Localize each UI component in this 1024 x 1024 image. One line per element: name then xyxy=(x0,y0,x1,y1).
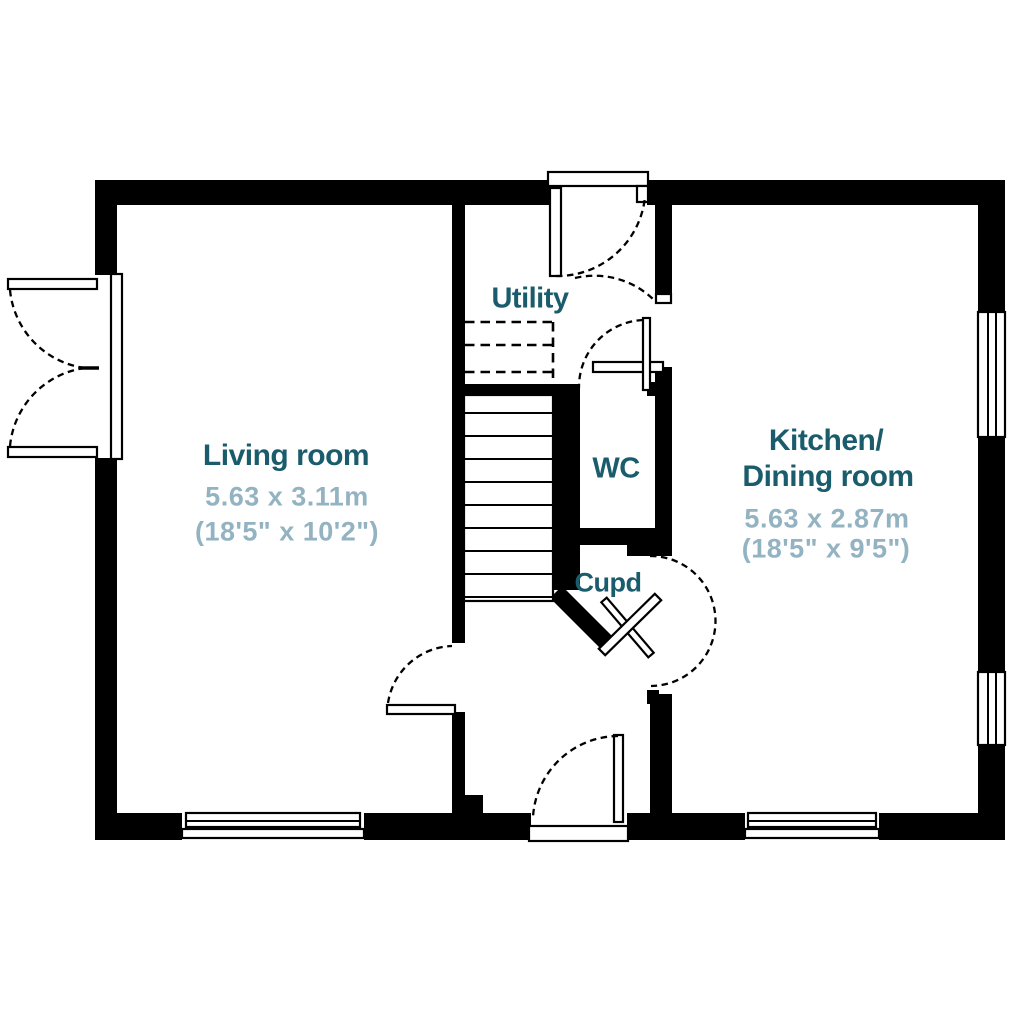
kitchen-label-line2: Dining room xyxy=(742,462,913,492)
kitchen-metric-dimensions: 5.63 x 2.87m xyxy=(744,506,909,533)
kitchen-imperial-dimensions: (18'5" x 9'5") xyxy=(742,536,911,563)
living-room-label: Living room xyxy=(203,441,369,471)
kitchen-wall-lower xyxy=(650,694,672,813)
cupboard-label: Cupd xyxy=(575,570,642,597)
wall-top-left xyxy=(95,180,550,205)
wc-label: WC xyxy=(592,455,639,484)
kitchen-wall-upper xyxy=(655,205,672,302)
living-room-imperial-dimensions: (18'5" x 10'2") xyxy=(195,519,379,546)
entry-door-jamb xyxy=(637,186,648,202)
wc-door-leaf xyxy=(643,318,650,390)
living-wall-pier xyxy=(463,795,483,813)
french-door-leaf-bottom xyxy=(8,447,97,457)
wall-top-right xyxy=(647,180,1005,205)
living-room-door-leaf xyxy=(387,705,455,714)
kitchen-door-arc xyxy=(575,276,656,302)
stairs-wc-wall xyxy=(552,396,580,590)
cupboard-diagonal-wall xyxy=(556,592,610,646)
kitchen-label-line1: Kitchen/ xyxy=(769,426,883,456)
cupboard-door-arc xyxy=(650,556,716,686)
utility-appliance-outline xyxy=(465,322,553,383)
entry-door-arc xyxy=(556,197,645,276)
french-door-arc-bottom xyxy=(10,368,85,446)
floor-plan: Living room 5.63 x 3.11m (18'5" x 10'2")… xyxy=(0,0,1024,1024)
french-door-threshold xyxy=(111,274,122,459)
right-wall-window-lower xyxy=(978,672,1005,745)
right-wall-window-upper xyxy=(978,312,1005,437)
entry-door-leaf xyxy=(550,188,561,276)
kitchen-doorway-jamb xyxy=(656,294,671,303)
entry-door-threshold xyxy=(548,172,648,186)
kitchen-window xyxy=(745,813,879,838)
wc-door-arc xyxy=(579,320,643,388)
living-room-metric-dimensions: 5.63 x 3.11m xyxy=(205,484,369,511)
staircase xyxy=(464,395,553,601)
front-door-threshold xyxy=(529,826,628,841)
kitchen-door-leaf xyxy=(593,362,663,372)
front-door-leaf xyxy=(614,735,623,822)
stairs-outline xyxy=(464,395,553,601)
front-door-arc xyxy=(533,736,618,817)
utility-label: Utility xyxy=(491,285,568,314)
living-room-door-arc xyxy=(388,646,452,703)
french-door-arc-top xyxy=(10,290,85,368)
living-room-window xyxy=(182,813,364,838)
french-door-leaf-top xyxy=(8,279,97,289)
